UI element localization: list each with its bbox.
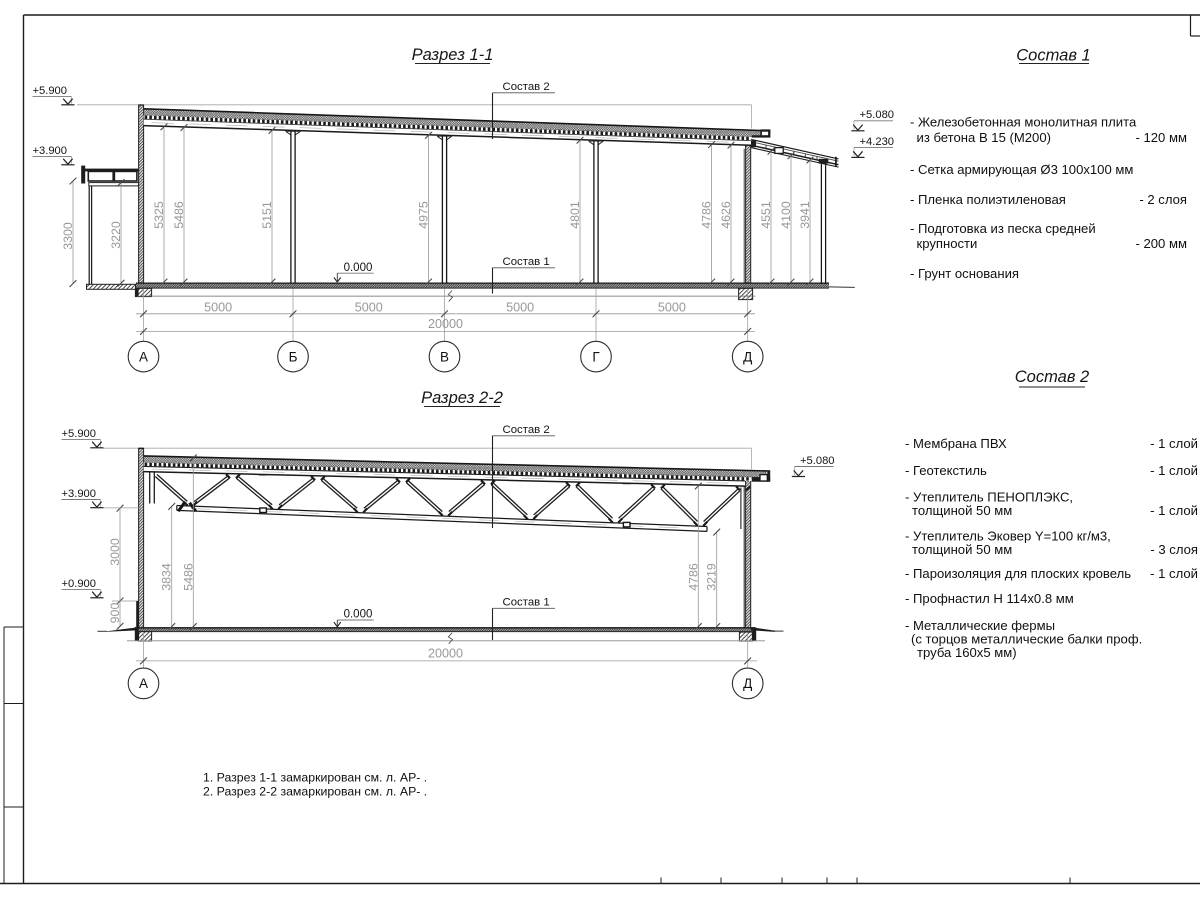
svg-text:- Сетка армирующая Ø3 100х100: - Сетка армирующая Ø3 100х100 мм: [910, 162, 1133, 177]
svg-text:Состав 1: Состав 1: [503, 256, 550, 268]
svg-text:Состав 2: Состав 2: [503, 424, 550, 436]
svg-text:4786: 4786: [699, 201, 713, 229]
svg-text:Состав 2: Состав 2: [1015, 368, 1089, 386]
svg-text:3834: 3834: [160, 563, 174, 591]
svg-text:Г: Г: [592, 349, 600, 364]
svg-text:- 1 слой: - 1 слой: [1150, 566, 1198, 581]
svg-text:3000: 3000: [108, 538, 122, 566]
svg-text:из бетона В 15 (М200): из бетона В 15 (М200): [917, 130, 1052, 145]
svg-text:5486: 5486: [181, 563, 195, 591]
svg-text:4626: 4626: [719, 201, 733, 229]
svg-text:1. Разрез 1-1 замаркирован см.: 1. Разрез 1-1 замаркирован см. л. АР- .: [203, 771, 427, 785]
svg-text:5000: 5000: [658, 300, 686, 314]
svg-text:5325: 5325: [152, 201, 166, 229]
svg-text:3219: 3219: [705, 563, 719, 591]
svg-text:4100: 4100: [779, 201, 793, 229]
svg-text:Д: Д: [743, 676, 752, 691]
svg-text:+0.900: +0.900: [61, 578, 96, 590]
svg-text:Разрез 2-2: Разрез 2-2: [421, 389, 503, 407]
svg-text:- 120 мм: - 120 мм: [1136, 130, 1188, 145]
svg-text:3300: 3300: [61, 222, 75, 250]
svg-text:- 1 слой: - 1 слой: [1150, 503, 1198, 518]
svg-text:+5.900: +5.900: [61, 428, 96, 440]
svg-text:20000: 20000: [428, 317, 463, 331]
svg-text:+5.080: +5.080: [800, 455, 835, 467]
svg-text:0.000: 0.000: [344, 609, 373, 621]
svg-text:Состав 1: Состав 1: [1016, 47, 1090, 65]
svg-text:труба 160х5 мм): труба 160х5 мм): [917, 645, 1017, 660]
svg-text:4551: 4551: [759, 201, 773, 229]
svg-text:- Профнастил Н 114х0.8 мм: - Профнастил Н 114х0.8 мм: [905, 591, 1074, 606]
svg-text:- Подготовка из песка средней: - Подготовка из песка средней: [910, 221, 1096, 236]
svg-text:толщиной 50 мм: толщиной 50 мм: [912, 503, 1012, 518]
svg-text:- Мембрана ПВХ: - Мембрана ПВХ: [905, 436, 1007, 451]
svg-text:5486: 5486: [172, 201, 186, 229]
svg-text:+3.900: +3.900: [32, 145, 67, 157]
svg-text:4786: 4786: [686, 563, 700, 591]
svg-text:Д: Д: [743, 349, 752, 364]
svg-text:- Пароизоляция для плоских кро: - Пароизоляция для плоских кровель: [905, 566, 1131, 581]
svg-text:4801: 4801: [568, 201, 582, 229]
svg-text:Состав 2: Состав 2: [503, 81, 550, 93]
svg-text:толщиной 50 мм: толщиной 50 мм: [912, 542, 1012, 557]
svg-text:Б: Б: [289, 349, 298, 364]
svg-text:- Грунт основания: - Грунт основания: [910, 266, 1019, 281]
svg-text:+4.230: +4.230: [860, 136, 895, 148]
svg-text:4975: 4975: [416, 201, 430, 229]
svg-text:- 1 слой: - 1 слой: [1150, 436, 1198, 451]
svg-text:- Геотекстиль: - Геотекстиль: [905, 463, 987, 478]
svg-text:+5.080: +5.080: [860, 109, 895, 121]
svg-text:900: 900: [108, 603, 122, 624]
svg-text:- 2 слоя: - 2 слоя: [1139, 192, 1187, 207]
svg-text:20000: 20000: [428, 647, 463, 661]
svg-text:А: А: [139, 676, 148, 691]
svg-text:- 1 слой: - 1 слой: [1150, 463, 1198, 478]
svg-text:- Пленка полиэтиленовая: - Пленка полиэтиленовая: [910, 192, 1066, 207]
svg-text:5000: 5000: [506, 300, 534, 314]
svg-text:Разрез 1-1: Разрез 1-1: [412, 46, 494, 64]
svg-text:А: А: [139, 349, 148, 364]
svg-text:- Железобетонная монолитная п: - Железобетонная монолитная плита: [910, 114, 1137, 129]
svg-text:+3.900: +3.900: [61, 488, 96, 500]
svg-text:5151: 5151: [260, 201, 274, 229]
svg-text:3220: 3220: [109, 221, 123, 249]
svg-text:+5.900: +5.900: [32, 85, 67, 97]
svg-text:- 3 слоя: - 3 слоя: [1150, 542, 1198, 557]
svg-text:5000: 5000: [355, 300, 383, 314]
svg-text:крупности: крупности: [917, 236, 978, 251]
svg-text:3941: 3941: [798, 201, 812, 229]
svg-text:- 200 мм: - 200 мм: [1136, 236, 1188, 251]
svg-text:5000: 5000: [204, 300, 232, 314]
svg-text:2. Разрез 2-2 замаркирован см.: 2. Разрез 2-2 замаркирован см. л. АР- .: [203, 785, 427, 799]
svg-text:В: В: [440, 349, 449, 364]
svg-text:0.000: 0.000: [344, 262, 373, 274]
svg-text:Состав 1: Состав 1: [503, 597, 550, 609]
